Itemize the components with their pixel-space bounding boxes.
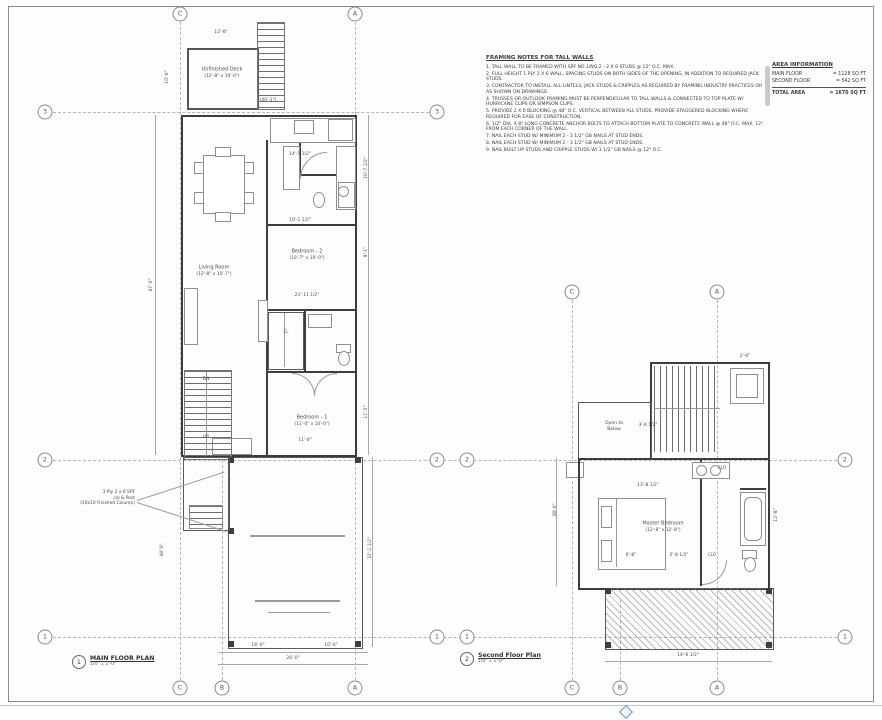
room-label: Unfinished Deck bbox=[202, 68, 243, 73]
dimension-label: 11'-0" bbox=[298, 439, 311, 443]
sink bbox=[696, 465, 707, 476]
second-deck-hatched bbox=[605, 588, 774, 650]
page-title: Second Floor Plan bbox=[478, 652, 541, 659]
grid-bubble: 1 bbox=[430, 630, 445, 645]
dimension-label: 14'-6 1/2" bbox=[677, 654, 699, 658]
plan-scale: 1/4" = 1'-0" bbox=[478, 659, 541, 664]
pillow bbox=[601, 506, 612, 528]
deck-post bbox=[605, 588, 611, 594]
dimension-label: 38'-0" bbox=[554, 503, 558, 516]
grid-bubble: A bbox=[710, 285, 725, 300]
grid-bubble: C bbox=[173, 681, 188, 696]
deck-post bbox=[766, 588, 772, 594]
framing-note-item: 6. 1/2" DIA. X 8" LONG CONCRETE ANCHOR B… bbox=[486, 122, 764, 133]
grid-bubble: 2 bbox=[430, 453, 445, 468]
grid-bubble: 2 bbox=[38, 453, 53, 468]
interior-wall bbox=[267, 371, 355, 373]
porch-post bbox=[355, 457, 361, 463]
framing-note-item: 4. TRUSSES OR OUTLOOK FRAMING MUST BE PE… bbox=[486, 97, 764, 108]
grid-bubble: 2 bbox=[838, 453, 853, 468]
framing-notes: FRAMING NOTES FOR TALL WALLS 1. TALL WAL… bbox=[486, 55, 764, 154]
sink bbox=[338, 186, 349, 197]
area-row-label: SECOND FLOOR bbox=[772, 78, 810, 85]
interior-wall bbox=[740, 488, 766, 490]
chair bbox=[215, 147, 231, 157]
dining-table bbox=[203, 155, 245, 214]
room-label: Below bbox=[607, 428, 621, 433]
drawing-sheet: FRAMING NOTES FOR TALL WALLS 1. TALL WAL… bbox=[0, 0, 882, 720]
dimension-label: 21'-11 1/2" bbox=[295, 294, 319, 298]
area-information-table: AREA INFORMATION MAIN FLOOR = 1128 SQ FT… bbox=[772, 62, 866, 98]
bathtub-inner bbox=[744, 497, 762, 541]
bottom-scrollbar-track[interactable] bbox=[0, 705, 882, 706]
dimension-label: 5'-8 1/2" bbox=[670, 554, 689, 558]
room-label: Bedroom - 1 bbox=[297, 416, 328, 421]
chair bbox=[215, 212, 231, 222]
plan-number-bubble: 1 bbox=[72, 655, 86, 669]
dim-line bbox=[218, 664, 368, 665]
chair bbox=[194, 192, 204, 204]
grid-bubble: A bbox=[348, 681, 363, 696]
plan-number-bubble: 2 bbox=[460, 652, 474, 666]
framing-note-item: 9. NAIL BUILT UP STUDS AND CRIPPLE STUDS… bbox=[486, 148, 764, 154]
framing-note-item: 1. TALL WALL TO BE FRAMED WITH SPF NO.1/… bbox=[486, 65, 764, 71]
framing-notes-title: FRAMING NOTES FOR TALL WALLS bbox=[486, 55, 764, 61]
room-label: Open to bbox=[605, 422, 623, 427]
dimension-label: 6'-8" bbox=[626, 554, 636, 558]
porch-post bbox=[228, 641, 234, 647]
stair-closet-shelf bbox=[736, 374, 758, 398]
room-label: (10'-7" x 10'-0") bbox=[289, 257, 324, 261]
dimension-label: 44'-0" bbox=[161, 543, 165, 556]
page-title: MAIN FLOOR PLAN bbox=[90, 655, 154, 662]
dimension-label: 9'-1" bbox=[365, 247, 369, 257]
chair bbox=[194, 162, 204, 174]
dimension-label: (40'-1") bbox=[260, 99, 277, 103]
porch-post bbox=[355, 641, 361, 647]
dim-line bbox=[155, 115, 156, 455]
framing-note-item: 5. PROVIDE 2 X 6 BLOCKING @ 48" O.C. VER… bbox=[486, 109, 764, 120]
dim-line bbox=[556, 458, 557, 586]
grid-bubble: 2 bbox=[460, 453, 475, 468]
dimension-label: 13'-8 1/2" bbox=[637, 484, 659, 488]
dim-line bbox=[218, 652, 368, 653]
plan-title-group: Second Floor Plan 1/4" = 1'-0" bbox=[478, 652, 541, 664]
grid-line-3 bbox=[53, 112, 429, 113]
toilet-bowl bbox=[338, 351, 350, 366]
room-label: (11'-0" x 10'-0") bbox=[294, 423, 329, 427]
room-label: CLO bbox=[718, 466, 726, 470]
scrollbar-thumb-diamond[interactable] bbox=[619, 705, 633, 719]
grid-bubble: 3 bbox=[430, 105, 445, 120]
dimension-label: 31'-1 1/2" bbox=[369, 537, 373, 559]
room-label: CLO bbox=[708, 553, 716, 557]
grid-bubble: 3 bbox=[38, 105, 53, 120]
pillow bbox=[601, 540, 612, 562]
room-label: UP bbox=[203, 436, 209, 440]
grid-bubble: B bbox=[613, 681, 628, 696]
framing-note-item: 7. NAIL EACH STUD W/ MINIMUM 2 - 3 1/2" … bbox=[486, 134, 764, 140]
dimension-label: 26'-0" bbox=[286, 657, 299, 661]
deck-stairs bbox=[257, 22, 285, 110]
grid-bubble: 1 bbox=[460, 630, 475, 645]
kitchen-sink bbox=[294, 120, 314, 134]
room-label: Master Bedroom bbox=[642, 522, 683, 527]
grid-bubble: A bbox=[710, 681, 725, 696]
dimension-label: 16'-0" bbox=[251, 644, 264, 648]
area-table-title: AREA INFORMATION bbox=[772, 62, 866, 68]
grid-bubble: C bbox=[173, 7, 188, 22]
sofa bbox=[184, 288, 198, 345]
toilet bbox=[313, 192, 325, 208]
dimension-label: 10'-0" bbox=[324, 644, 337, 648]
table-row: SECOND FLOOR = 542 SQ FT bbox=[772, 78, 866, 85]
second-plan-title-block: 2 Second Floor Plan 1/4" = 1'-0" bbox=[460, 652, 541, 666]
interior-wall bbox=[304, 310, 306, 372]
deck-board bbox=[255, 600, 340, 602]
bath-vanity bbox=[308, 314, 332, 328]
chair bbox=[244, 192, 254, 204]
closet-rod bbox=[284, 313, 285, 367]
framing-note-item: 2. FULL HEIGHT 1 PLY 2 X 6 WALL, SPACING… bbox=[486, 72, 764, 83]
chair bbox=[244, 162, 254, 174]
grid-bubble: 1 bbox=[838, 630, 853, 645]
dimension-label: 10'-1 1/2" bbox=[289, 219, 311, 223]
notes-divider-bar bbox=[765, 66, 770, 106]
deck-board bbox=[250, 535, 345, 537]
room-label: (12'-8" x 10'-0") bbox=[204, 75, 239, 79]
porch-outline bbox=[228, 457, 363, 649]
dimension-label: 2'-6" bbox=[740, 355, 750, 359]
dimension-label: 12'-8" bbox=[775, 508, 779, 521]
main-plan-title-block: 1 MAIN FLOOR PLAN 1/4" = 1'-0" bbox=[72, 655, 154, 669]
callout-line: (10x10 Finished Column) bbox=[75, 501, 135, 507]
deck-board bbox=[268, 612, 330, 613]
interior-wall bbox=[267, 224, 355, 226]
grid-line-c2 bbox=[572, 300, 573, 680]
main-stairs bbox=[184, 370, 232, 460]
framing-notes-list: 1. TALL WALL TO BE FRAMED WITH SPF NO.1/… bbox=[486, 65, 764, 153]
area-row-label: TOTAL AREA bbox=[772, 90, 805, 97]
toilet-bowl bbox=[744, 557, 756, 572]
table-row: MAIN FLOOR = 1128 SQ FT bbox=[772, 71, 866, 78]
grid-bubble: 1 bbox=[38, 630, 53, 645]
plan-title-group: MAIN FLOOR PLAN 1/4" = 1'-0" bbox=[90, 655, 154, 667]
area-row-value: = 1128 SQ FT bbox=[833, 71, 866, 78]
room-label: Bedroom - 2 bbox=[292, 250, 323, 255]
dimension-label: 11'-5" bbox=[365, 405, 369, 418]
interior-wall bbox=[266, 140, 268, 455]
room-label: (12'-8" x 12'-8") bbox=[645, 529, 680, 533]
grid-bubble: C bbox=[565, 285, 580, 300]
interior-wall bbox=[267, 309, 355, 311]
dimension-label: 10'-0" bbox=[166, 70, 170, 83]
framing-note-item: 8. NAIL EACH STUD W/ MINIMUM 2 - 3 1/2" … bbox=[486, 141, 764, 147]
dimension-label: 47'-0" bbox=[150, 278, 154, 291]
grid-bubble: B bbox=[215, 681, 230, 696]
second-stairs bbox=[654, 366, 720, 452]
room-label: DN bbox=[203, 378, 210, 382]
room-label: CL bbox=[283, 330, 288, 334]
tv-cabinet bbox=[258, 300, 268, 342]
table-row-total: TOTAL AREA = 1670 SQ FT bbox=[772, 87, 866, 97]
closet bbox=[268, 312, 304, 370]
deck-post bbox=[605, 642, 611, 648]
area-row-value: = 542 SQ FT bbox=[836, 78, 866, 85]
grid-bubble: C bbox=[565, 681, 580, 696]
area-row-value: = 1670 SQ FT bbox=[830, 90, 866, 97]
dimension-label: 14'-5 1/2" bbox=[289, 153, 311, 157]
stair-rail bbox=[654, 408, 720, 409]
area-row-label: MAIN FLOOR bbox=[772, 71, 802, 78]
dimension-label: 10'-7 1/2" bbox=[365, 157, 369, 179]
plan-scale: 1/4" = 1'-0" bbox=[90, 662, 154, 667]
deck-post bbox=[766, 642, 772, 648]
dimension-label: 12'-8" bbox=[214, 31, 227, 35]
dimension-label: 3'-6 1/2" bbox=[639, 424, 658, 428]
blanket-line bbox=[616, 499, 617, 567]
grid-bubble: A bbox=[348, 7, 363, 22]
dim-line bbox=[605, 661, 772, 662]
room-label: (12'-8" x 15'-7") bbox=[196, 273, 231, 277]
stove bbox=[328, 119, 353, 141]
room-label: Living Room bbox=[199, 266, 230, 271]
framing-note-item: 3. CONTRACTOR TO INSTALL ALL LINTELS, JA… bbox=[486, 84, 764, 95]
column-callout: 3 Ply 2 x 6 SPF col & Post (10x10 Finish… bbox=[75, 490, 135, 507]
stair-rail bbox=[206, 372, 207, 456]
